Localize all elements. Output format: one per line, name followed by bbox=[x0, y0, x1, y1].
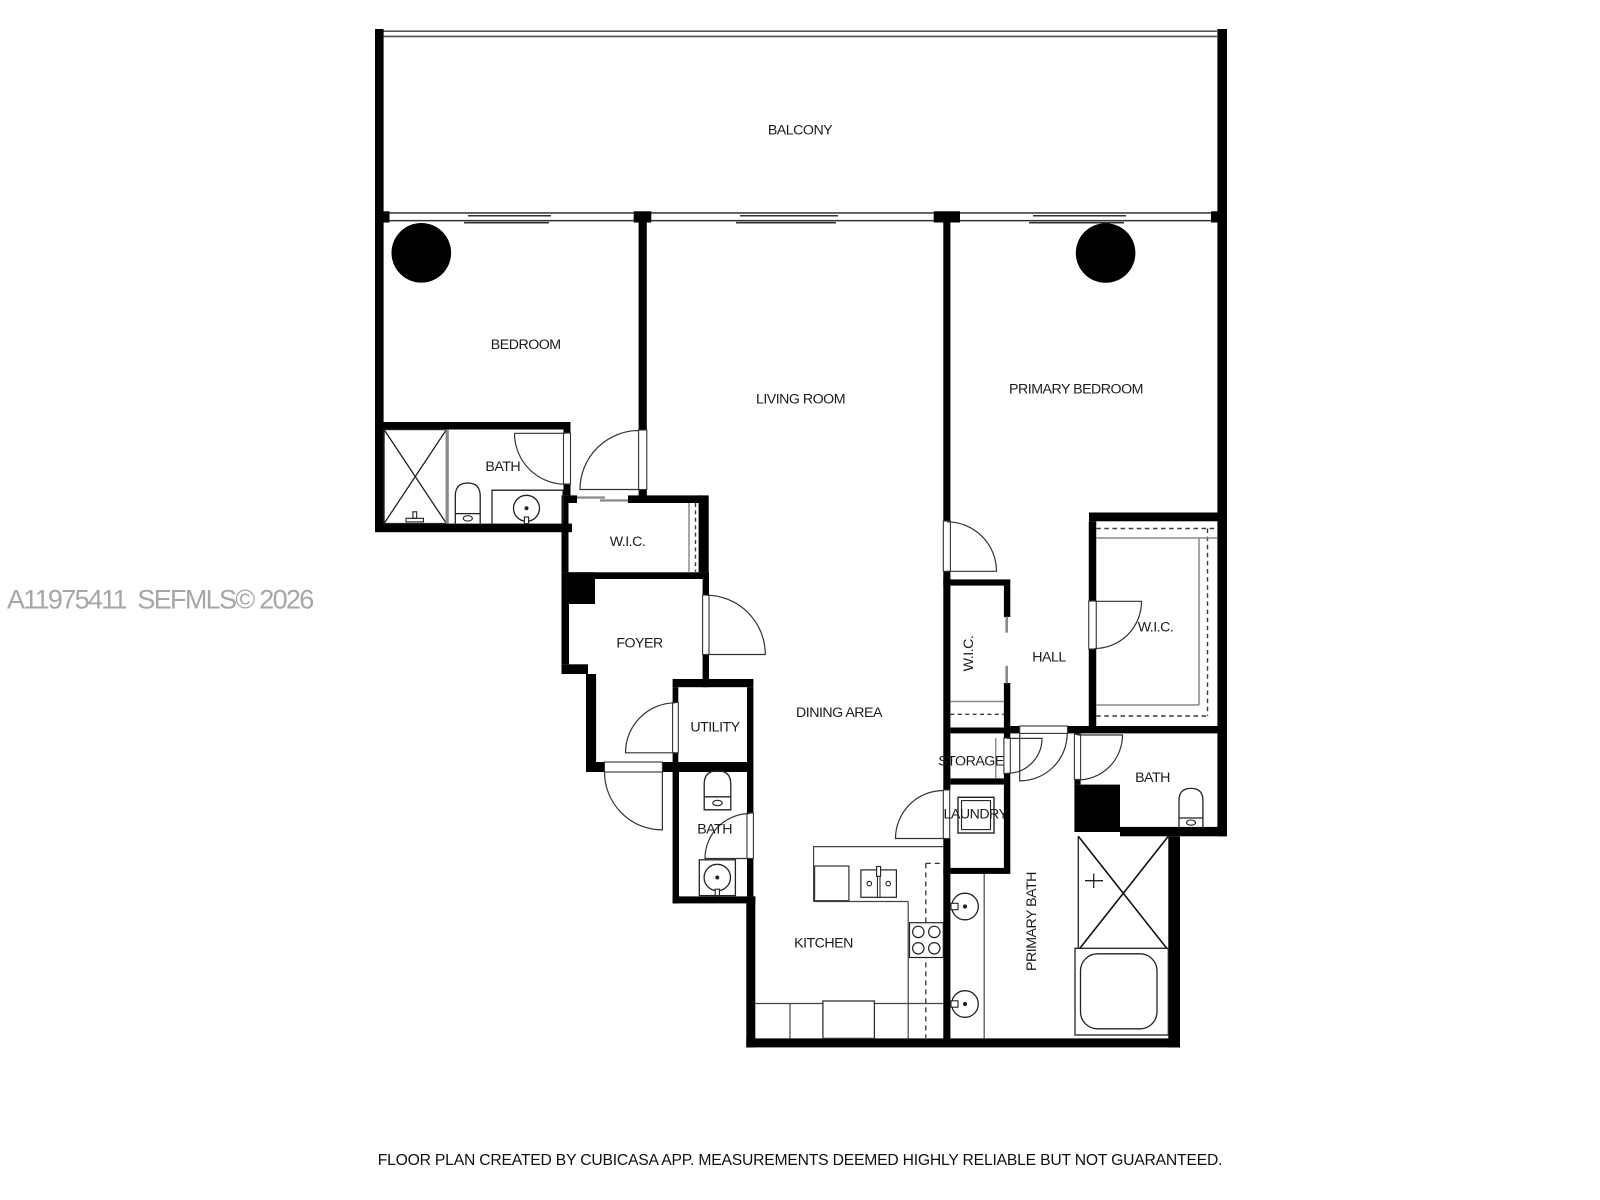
svg-text:UTILITY: UTILITY bbox=[690, 720, 740, 736]
svg-text:PRIMARY BATH: PRIMARY BATH bbox=[1024, 872, 1040, 971]
svg-text:DINING AREA: DINING AREA bbox=[796, 705, 883, 721]
svg-text:LIVING ROOM: LIVING ROOM bbox=[756, 392, 845, 408]
svg-text:BATH: BATH bbox=[1135, 770, 1170, 786]
svg-text:BALCONY: BALCONY bbox=[768, 123, 833, 139]
svg-text:KITCHEN: KITCHEN bbox=[794, 936, 853, 952]
svg-text:BEDROOM: BEDROOM bbox=[491, 337, 561, 353]
svg-text:PRIMARY BEDROOM: PRIMARY BEDROOM bbox=[1009, 382, 1143, 398]
svg-text:LAUNDRY: LAUNDRY bbox=[943, 806, 1008, 822]
svg-text:BATH: BATH bbox=[485, 459, 520, 475]
svg-text:W.I.C.: W.I.C. bbox=[1138, 620, 1174, 636]
svg-text:FOYER: FOYER bbox=[616, 636, 663, 652]
svg-text:BATH: BATH bbox=[697, 821, 732, 837]
svg-text:A11975411 SEFMLS© 2026: A11975411 SEFMLS© 2026 bbox=[7, 585, 313, 615]
svg-text:STORAGE: STORAGE bbox=[938, 754, 1004, 770]
svg-text:W.I.C.: W.I.C. bbox=[610, 534, 646, 550]
svg-text:W.I.C.: W.I.C. bbox=[961, 636, 977, 672]
svg-text:FLOOR PLAN CREATED BY CUBICASA: FLOOR PLAN CREATED BY CUBICASA APP. MEAS… bbox=[378, 1152, 1223, 1169]
svg-text:HALL: HALL bbox=[1032, 650, 1066, 666]
